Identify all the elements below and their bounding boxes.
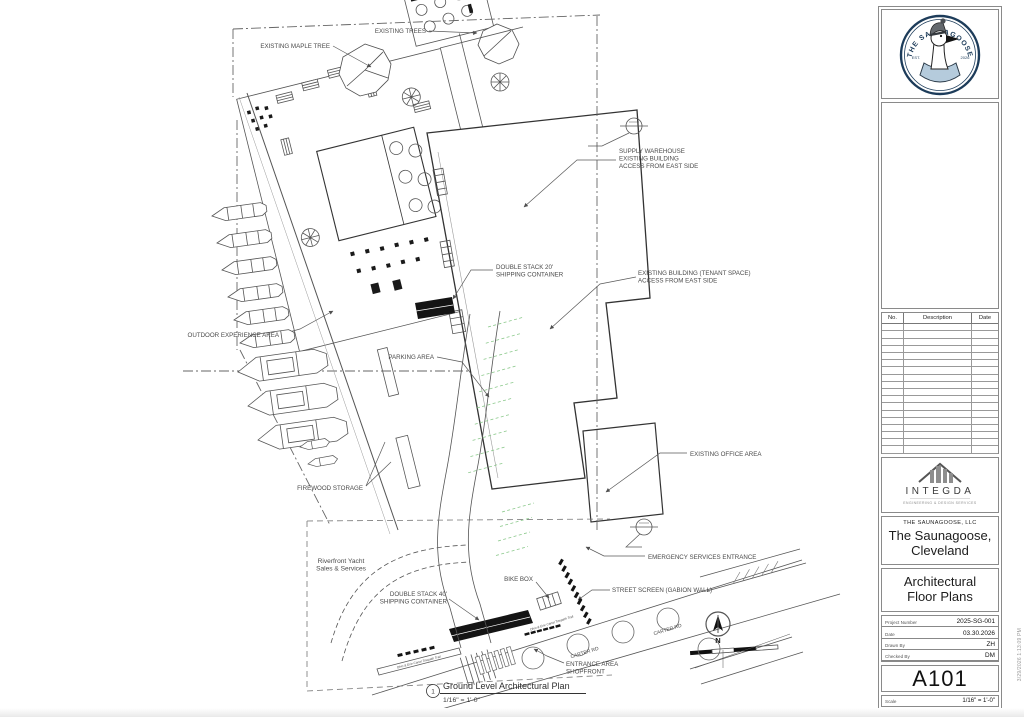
plan-label-towpath-trail-2: Ohio & Erie Canal Towpath Trail (530, 614, 575, 631)
revision-row (882, 411, 998, 418)
plan-label-line: Sales & Services (316, 565, 367, 572)
plan-label-line: FIREWOOD STORAGE (297, 485, 363, 492)
revision-cell (972, 382, 998, 389)
plan-label-line: SHIPPING CONTAINER (496, 271, 564, 278)
revision-cell (972, 339, 998, 346)
sheet-title-box: Architectural Floor Plans (881, 568, 999, 612)
revision-row (882, 324, 998, 331)
revision-cell (972, 331, 998, 338)
field-label: Project Number (885, 620, 917, 625)
plan-label-parking-area: PARKING AREA (388, 354, 434, 361)
street-tree (522, 647, 544, 669)
small-boat (211, 202, 267, 223)
section-marker-2 (630, 519, 658, 535)
gabion-dash-rect (564, 572, 570, 579)
plan-label-line: EXISTING OFFICE AREA (690, 451, 762, 458)
revision-cell (882, 346, 904, 353)
revision-cell (972, 418, 998, 425)
revision-cell (904, 360, 972, 367)
revision-row (882, 360, 998, 367)
boat-hull (233, 306, 289, 327)
revision-cell (972, 353, 998, 360)
consultant-logo-box: INTEGDA ENGINEERING & DESIGN SERVICES (881, 457, 999, 513)
door-dash-rect (549, 626, 554, 630)
revision-cell (882, 411, 904, 418)
plan-label-line: DOUBLE STACK 20' (496, 264, 553, 271)
revision-row (882, 389, 998, 396)
plan-label-existing-maple-tree: EXISTING MAPLE TREE (260, 43, 330, 50)
revision-cell (972, 446, 998, 453)
gabion-dash (564, 572, 570, 579)
door-dash (543, 627, 548, 631)
revision-cell (972, 439, 998, 446)
jetski (307, 455, 338, 468)
revision-cell (882, 375, 904, 382)
integda-logo: INTEGDA ENGINEERING & DESIGN SERVICES (885, 460, 995, 510)
door-dash-rect (555, 624, 560, 628)
print-timestamp: 3/29/2026 1:13:09 PM (1017, 628, 1023, 681)
linework-layer (183, 0, 840, 717)
project-fields: Project Number2025-SG-001Date03.30.2026D… (881, 615, 999, 662)
office-building (583, 423, 663, 522)
door-dash-rect (537, 629, 542, 633)
boat-hull (221, 256, 277, 277)
company-name: THE SAUNAGOOSE, LLC (882, 520, 998, 526)
view-number: 1 (431, 689, 435, 696)
gabion-dash-rect (580, 605, 586, 612)
revision-cell (882, 331, 904, 338)
dock-dash (413, 649, 419, 653)
plan-label-line: ENTRANCE AREA (566, 661, 619, 668)
jetski-hull (307, 455, 338, 468)
boat-hull (227, 283, 283, 304)
revision-cell (972, 346, 998, 353)
revision-cell (904, 432, 972, 439)
titleblock-column: THE SAUNAGOOSE EST. 2026 No. Description… (878, 6, 1002, 710)
revision-cell (972, 324, 998, 331)
plan-label-line: Ohio & Erie Canal Towpath Trail (530, 614, 575, 631)
door-dash-rect (543, 627, 548, 631)
plan-label-line: EXISTING BUILDING (TENANT SPACE) (638, 270, 751, 277)
plan-label-riverfront-yacht: Riverfront YachtSales & Services (316, 558, 367, 572)
plan-label-bike-box: BIKE BOX (504, 576, 533, 583)
plan-label-line: BIKE BOX (504, 576, 533, 583)
field-row-date: Date03.30.2026 (882, 627, 998, 638)
revision-cell (882, 403, 904, 410)
scale-label: Scale (885, 699, 897, 704)
revision-row (882, 403, 998, 410)
project-name: The Saunagoose, Cleveland (882, 529, 998, 558)
revision-cell (904, 382, 972, 389)
boat-hull (216, 229, 272, 250)
plan-label-line: STREET SCREEN (GABION WALL) (612, 587, 712, 594)
door-dash (549, 626, 554, 630)
plan-label-existing-building-tenant: EXISTING BUILDING (TENANT SPACE)ACCESS F… (638, 270, 751, 284)
revision-cell (904, 367, 972, 374)
plan-label-line: SHOPFRONT (566, 668, 605, 675)
revision-cell (882, 396, 904, 403)
gabion-dash (583, 611, 589, 618)
dock-dash-rect (397, 653, 403, 657)
view-scale-text: 1/16" = 1'-0" (443, 697, 481, 704)
gabion-dash (574, 592, 580, 599)
drawing-sheet-area: EXISTING MAPLE TREEEXISTING TREESSUPPLY … (0, 0, 878, 717)
plan-label-line: CARTER RD (653, 623, 683, 637)
dock-dash (421, 648, 427, 652)
revision-row (882, 339, 998, 346)
plan-label-line: EMERGENCY SERVICES ENTRANCE (648, 554, 756, 561)
plan-label-line: SHIPPING CONTAINER (380, 598, 448, 605)
revision-cell (972, 360, 998, 367)
container-40ft (449, 610, 533, 642)
revision-table: No. Description Date (881, 312, 999, 454)
rev-col-no: No. (882, 313, 904, 324)
revision-header: No. Description Date (882, 313, 998, 324)
field-row-project-number: Project Number2025-SG-001 (882, 616, 998, 627)
integda-tagline: ENGINEERING & DESIGN SERVICES (903, 501, 977, 505)
revision-cell (904, 425, 972, 432)
rev-col-date: Date (972, 313, 998, 324)
plan-label-line: ACCESS FROM EAST SIDE (619, 163, 698, 170)
revision-cell (904, 375, 972, 382)
gabion-dash (577, 598, 583, 605)
sidewalk-hatch (733, 561, 778, 584)
plan-label-line: EXISTING MAPLE TREE (260, 43, 330, 50)
revision-cell (904, 353, 972, 360)
revision-cell (882, 339, 904, 346)
revision-cell (882, 418, 904, 425)
view-title-text: Ground Level Architectural Plan (443, 681, 570, 691)
plan-label-supply-warehouse: SUPPLY WAREHOUSEEXISTING BUILDINGACCESS … (619, 148, 698, 170)
revision-cell (882, 425, 904, 432)
dock-dash-rect (429, 646, 435, 650)
field-row-drawn-by: Drawn ByZH (882, 639, 998, 650)
gabion-dash-rect (568, 578, 574, 585)
door-dash (555, 624, 560, 628)
revision-cell (972, 403, 998, 410)
revision-cell (882, 353, 904, 360)
door-dash (524, 632, 529, 636)
plan-label-line: OUTDOOR EXPERIENCE AREA (188, 332, 280, 339)
revision-cell (972, 411, 998, 418)
plan-label-existing-trees: EXISTING TREES (375, 28, 426, 35)
plan-label-line: DOUBLE STACK 40' (390, 591, 447, 598)
revision-row (882, 425, 998, 432)
existing-trees-shape (478, 24, 519, 64)
revision-cell (972, 425, 998, 432)
field-row-checked-by: Checked ByDM (882, 650, 998, 661)
plan-label-line: Riverfront Yacht (318, 558, 365, 565)
revision-cell (972, 396, 998, 403)
revision-cell (882, 324, 904, 331)
plan-label-line: SUPPLY WAREHOUSE (619, 148, 685, 155)
parking-stall (498, 532, 530, 541)
yacht (236, 348, 328, 384)
plan-label-double-stack-40: DOUBLE STACK 40'SHIPPING CONTAINER (380, 591, 448, 605)
plan-label-outdoor-experience-area: OUTDOOR EXPERIENCE AREA (188, 332, 280, 339)
sheet-number-box: A101 (881, 665, 999, 692)
small-boat (216, 229, 272, 250)
gabion-dash-rect (558, 559, 564, 566)
revision-row (882, 382, 998, 389)
dock-dash-rect (405, 651, 411, 655)
revision-cell (882, 360, 904, 367)
north-letter: N (715, 636, 720, 645)
field-value: 2025-SG-001 (957, 618, 995, 625)
plan-label-line: EXISTING TREES (375, 28, 426, 35)
revision-cell (882, 382, 904, 389)
revision-cell (904, 439, 972, 446)
field-value: DM (985, 652, 995, 659)
gabion-dash (571, 585, 577, 592)
plan-label-existing-office-area: EXISTING OFFICE AREA (690, 451, 762, 458)
rev-col-description: Description (904, 313, 972, 324)
logo-est: EST. (912, 55, 920, 60)
plan-label-line: PARKING AREA (388, 354, 434, 361)
gabion-street-screen (558, 559, 591, 625)
revision-cell (972, 389, 998, 396)
plan-label-carter-rd-1: CARTER RD (570, 646, 600, 660)
field-label: Drawn By (885, 643, 905, 648)
gabion-dash-rect (586, 618, 592, 625)
plan-label-entrance-area-shopfront: ENTRANCE AREASHOPFRONT (566, 661, 619, 675)
revision-row (882, 375, 998, 382)
door-dash-rect (524, 632, 529, 636)
sheet-number: A101 (912, 666, 967, 692)
revision-cell (904, 389, 972, 396)
door-dash (537, 629, 542, 633)
table-cluster-b (350, 233, 438, 299)
gabion-dash (558, 559, 564, 566)
small-boat (233, 306, 289, 327)
revision-cell (904, 396, 972, 403)
parking-stall (502, 503, 534, 512)
revision-row (882, 346, 998, 353)
plan-label-line: ACCESS FROM EAST SIDE (638, 277, 717, 284)
gabion-dash (561, 565, 567, 572)
field-value: 03.30.2026 (963, 630, 995, 637)
yacht (246, 382, 338, 418)
parking-stall (496, 547, 528, 556)
revision-cell (904, 324, 972, 331)
revision-cell (972, 375, 998, 382)
revision-cell (972, 432, 998, 439)
revision-cell (904, 418, 972, 425)
field-label: Checked By (885, 654, 910, 659)
existing-maple-tree-shape (339, 44, 391, 96)
plan-label-line: CARTER RD (570, 646, 600, 660)
blank-box (881, 102, 999, 309)
gabion-dash-rect (571, 585, 577, 592)
gabion-dash-rect (583, 611, 589, 618)
gabion-dash-rect (577, 598, 583, 605)
revision-cell (972, 367, 998, 374)
gabion-dash (586, 618, 592, 625)
gabion-dash-rect (561, 565, 567, 572)
saunagoose-logo: THE SAUNAGOOSE EST. 2026 (882, 11, 998, 97)
revision-row (882, 331, 998, 338)
parking-stall (500, 518, 532, 527)
plan-label-emergency-services-entrance: EMERGENCY SERVICES ENTRANCE (648, 554, 756, 561)
revision-row (882, 432, 998, 439)
revision-cell (882, 439, 904, 446)
logo-year: 2026 (961, 55, 971, 60)
north-arrow (706, 612, 730, 636)
table-cluster-a (246, 104, 274, 132)
revision-cell (882, 432, 904, 439)
company-box: THE SAUNAGOOSE, LLC The Saunagoose, Clev… (881, 516, 999, 565)
revision-cell (904, 339, 972, 346)
site-plan-drawing: EXISTING MAPLE TREEEXISTING TREESSUPPLY … (0, 0, 878, 717)
small-boat (227, 283, 283, 304)
dock-dash-rect (421, 648, 427, 652)
revision-row (882, 367, 998, 374)
sheet-title: Architectural Floor Plans (890, 575, 990, 605)
revision-cell (882, 389, 904, 396)
scale-box: Scale 1/16" = 1'-0" (881, 695, 999, 707)
small-boat (221, 256, 277, 277)
gabion-dash-rect (574, 592, 580, 599)
dock-dash (405, 651, 411, 655)
revision-cell (904, 331, 972, 338)
brand-logo-box: THE SAUNAGOOSE EST. 2026 (881, 9, 999, 99)
graphic-scale-bar (690, 645, 778, 655)
scale-value: 1/16" = 1'-0" (962, 698, 995, 704)
field-value: ZH (986, 641, 995, 648)
dock-dash (429, 646, 435, 650)
revision-row (882, 446, 998, 453)
gabion-dash (568, 578, 574, 585)
revision-cell (904, 346, 972, 353)
sheet-edge-shade (0, 708, 1024, 717)
revision-cell (904, 446, 972, 453)
revision-cell (904, 411, 972, 418)
revision-row (882, 353, 998, 360)
revision-row (882, 418, 998, 425)
integda-name: INTEGDA (906, 486, 975, 497)
plan-label-street-screen: STREET SCREEN (GABION WALL) (612, 587, 712, 594)
revision-cell (882, 367, 904, 374)
plan-label-carter-rd-2: CARTER RD (653, 623, 683, 637)
plan-label-line: EXISTING BUILDING (619, 155, 679, 162)
bike-box-shape (537, 592, 562, 610)
revision-cell (882, 446, 904, 453)
revision-row (882, 396, 998, 403)
revision-cell (904, 403, 972, 410)
field-label: Date (885, 632, 895, 637)
revision-row (882, 439, 998, 446)
gabion-dash (580, 605, 586, 612)
boat-hull (211, 202, 267, 223)
street-tree (612, 621, 634, 643)
plan-label-firewood-storage: FIREWOOD STORAGE (297, 485, 363, 492)
dock-dash-rect (413, 649, 419, 653)
dock-dash (397, 653, 403, 657)
